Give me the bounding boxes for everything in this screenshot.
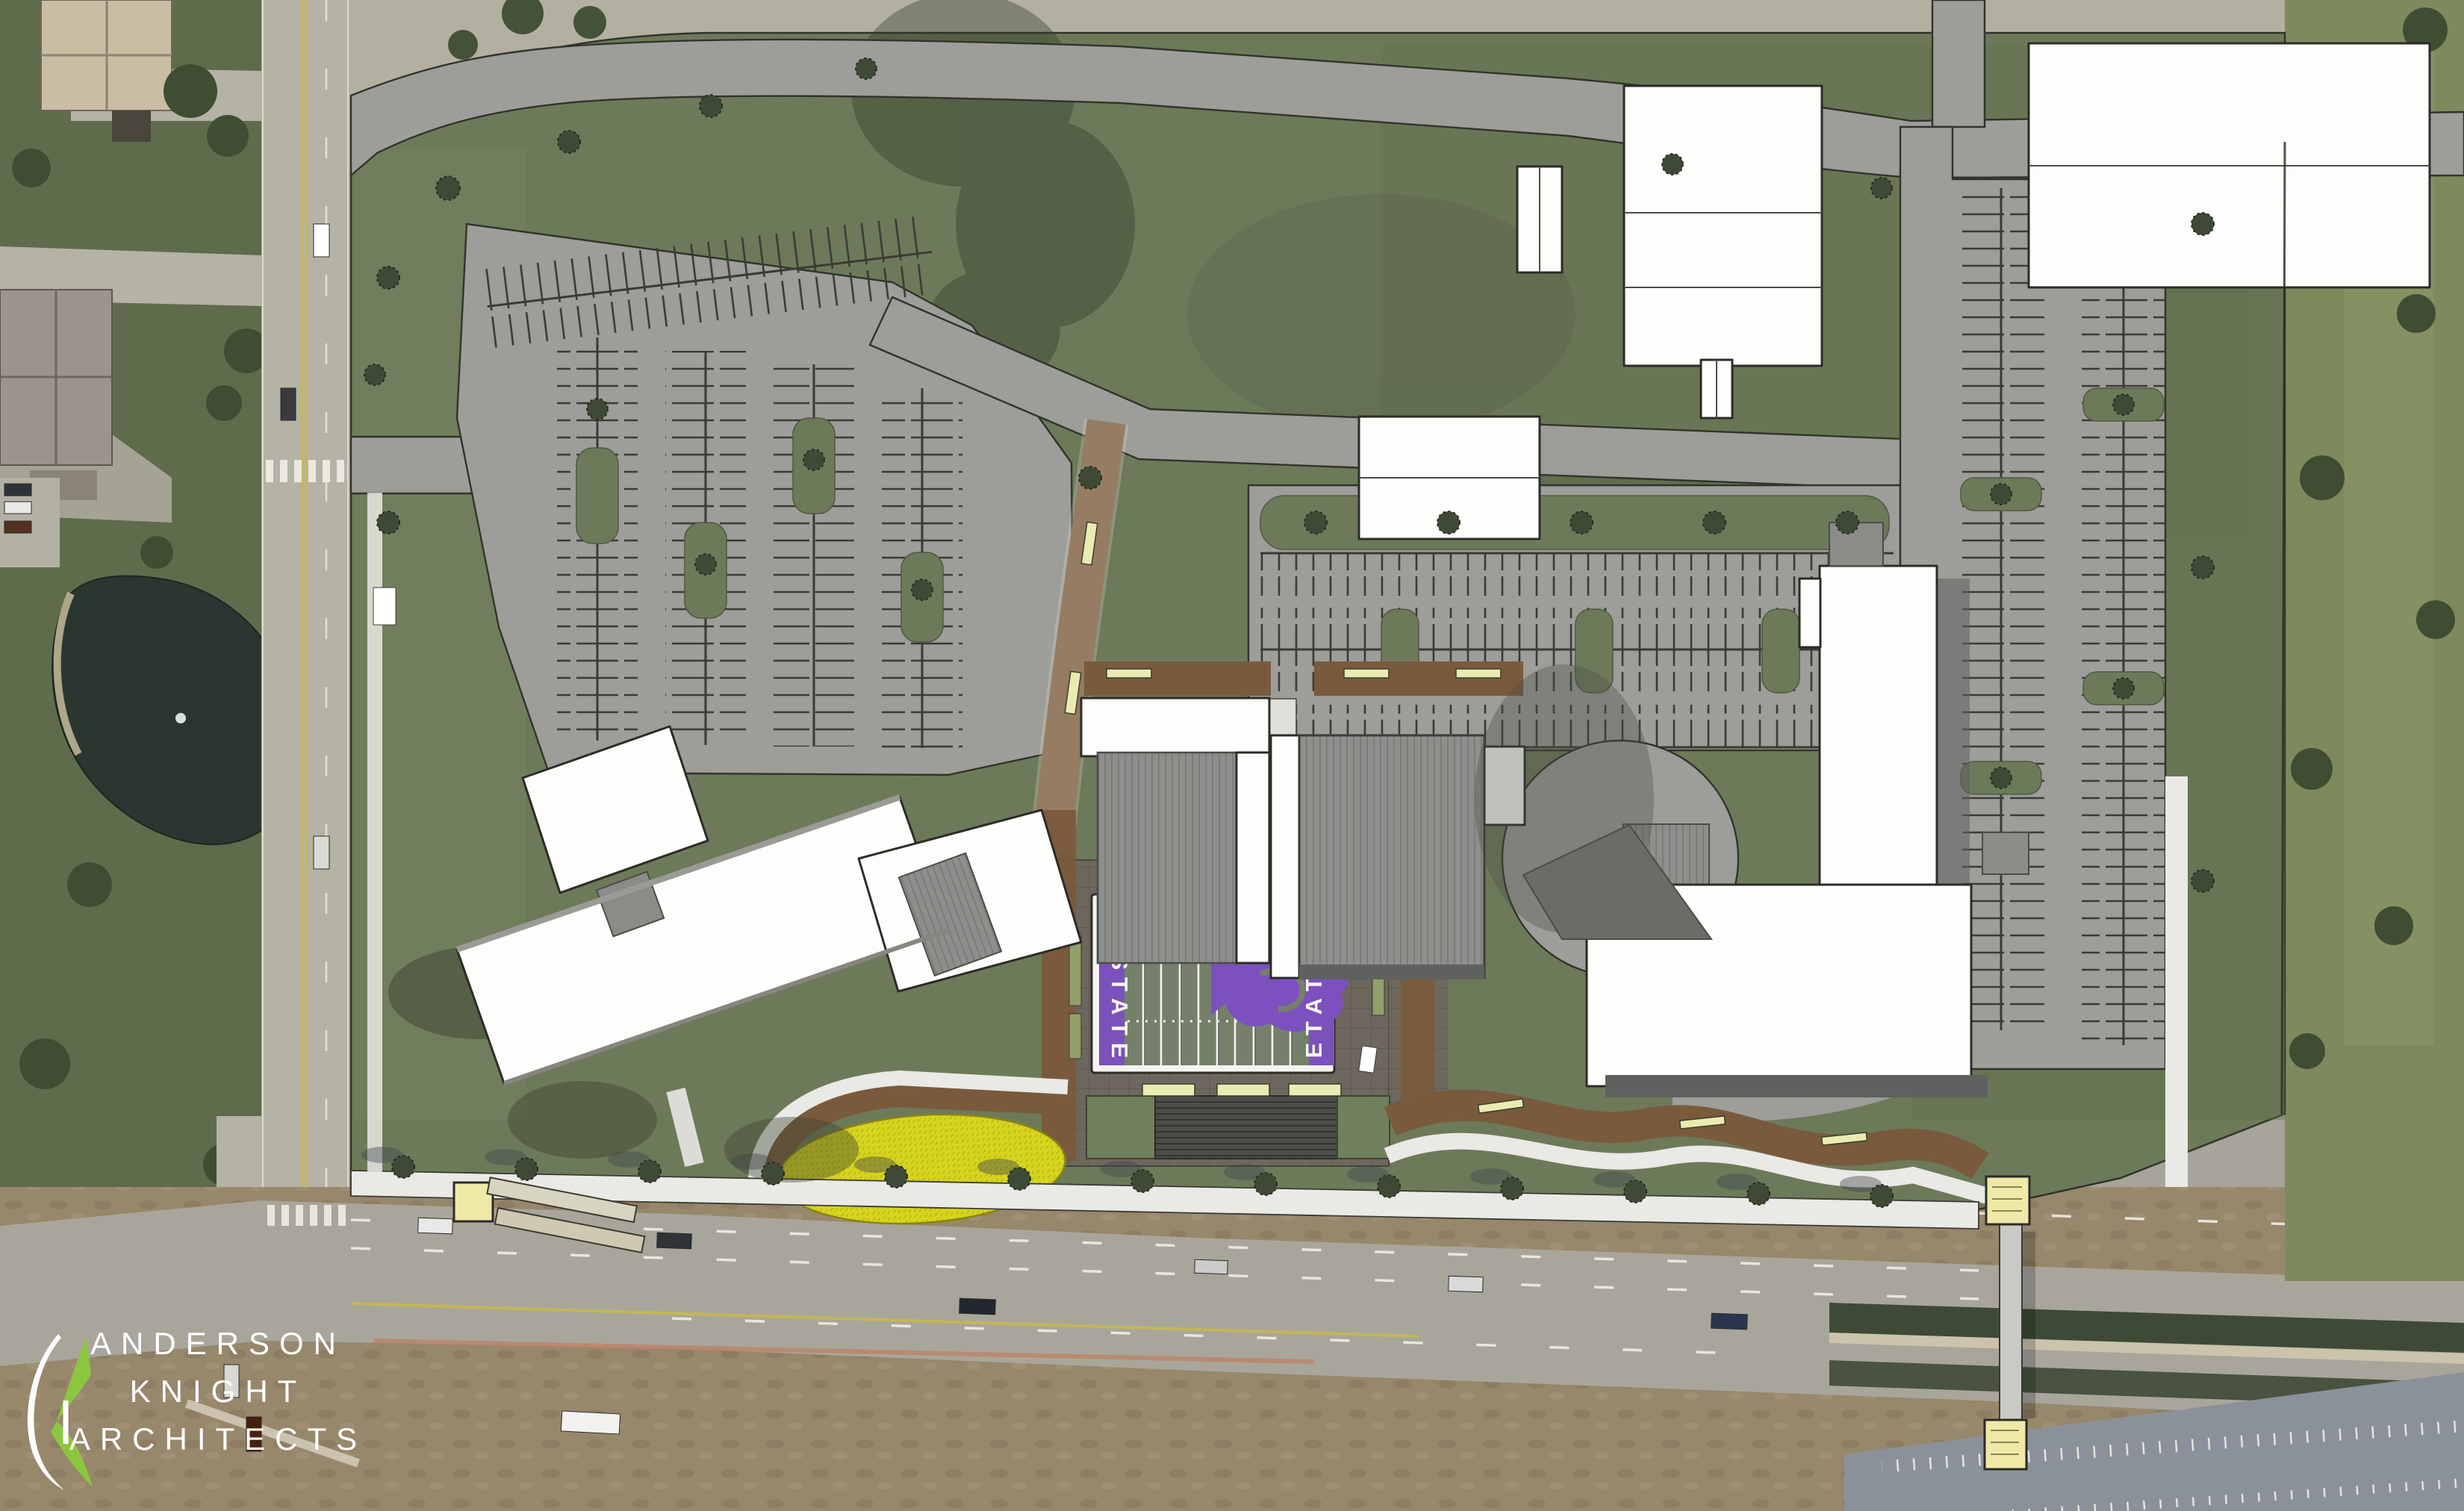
- car: [418, 1218, 453, 1234]
- svg-text:T: T: [1301, 1021, 1327, 1035]
- truck: [561, 1411, 620, 1434]
- svg-text:T: T: [1107, 1021, 1133, 1035]
- site-plan-svg: K-STATE K-STATE: [0, 0, 2464, 1511]
- aerial-south-band: [0, 1187, 2464, 1511]
- car: [281, 388, 296, 420]
- lawn-panel-west: [1086, 1096, 1155, 1159]
- svg-text:T: T: [1107, 977, 1133, 991]
- cart: [1359, 1046, 1378, 1073]
- car: [657, 1233, 692, 1249]
- firm-name-line1: ANDERSON: [90, 1326, 346, 1361]
- site-plan-rendering: K-STATE K-STATE: [0, 0, 2464, 1511]
- east-sidewalk: [2165, 776, 2188, 1187]
- car: [959, 1298, 996, 1315]
- car: [314, 836, 329, 869]
- car: [1711, 1313, 1748, 1330]
- amphitheater-seating: [1155, 1096, 1337, 1159]
- firm-name-line3: ARCHITECTS: [69, 1421, 367, 1457]
- car: [314, 224, 329, 257]
- stair-tower-north: [1986, 1177, 2029, 1224]
- firm-name-line2: KNIGHT: [130, 1374, 307, 1409]
- bridge-walkway: [2000, 1221, 2022, 1426]
- north-building-west: [1081, 698, 1269, 963]
- lawn-panel-east: [1337, 1096, 1390, 1159]
- car: [1449, 1276, 1484, 1292]
- svg-text:E: E: [1301, 1043, 1327, 1059]
- car: [1195, 1259, 1228, 1274]
- bus-shelter: [373, 588, 396, 625]
- planting-band: [1084, 661, 1271, 696]
- svg-text:A: A: [1301, 998, 1327, 1015]
- existing-parking-cars: [0, 478, 60, 567]
- stair-tower-south: [1985, 1420, 2026, 1469]
- road-stub-north: [1932, 0, 1985, 127]
- svg-text:E: E: [1107, 1043, 1133, 1059]
- west-entrance-drive: [351, 437, 479, 493]
- pond-fountain: [175, 713, 186, 723]
- svg-text:A: A: [1107, 998, 1133, 1015]
